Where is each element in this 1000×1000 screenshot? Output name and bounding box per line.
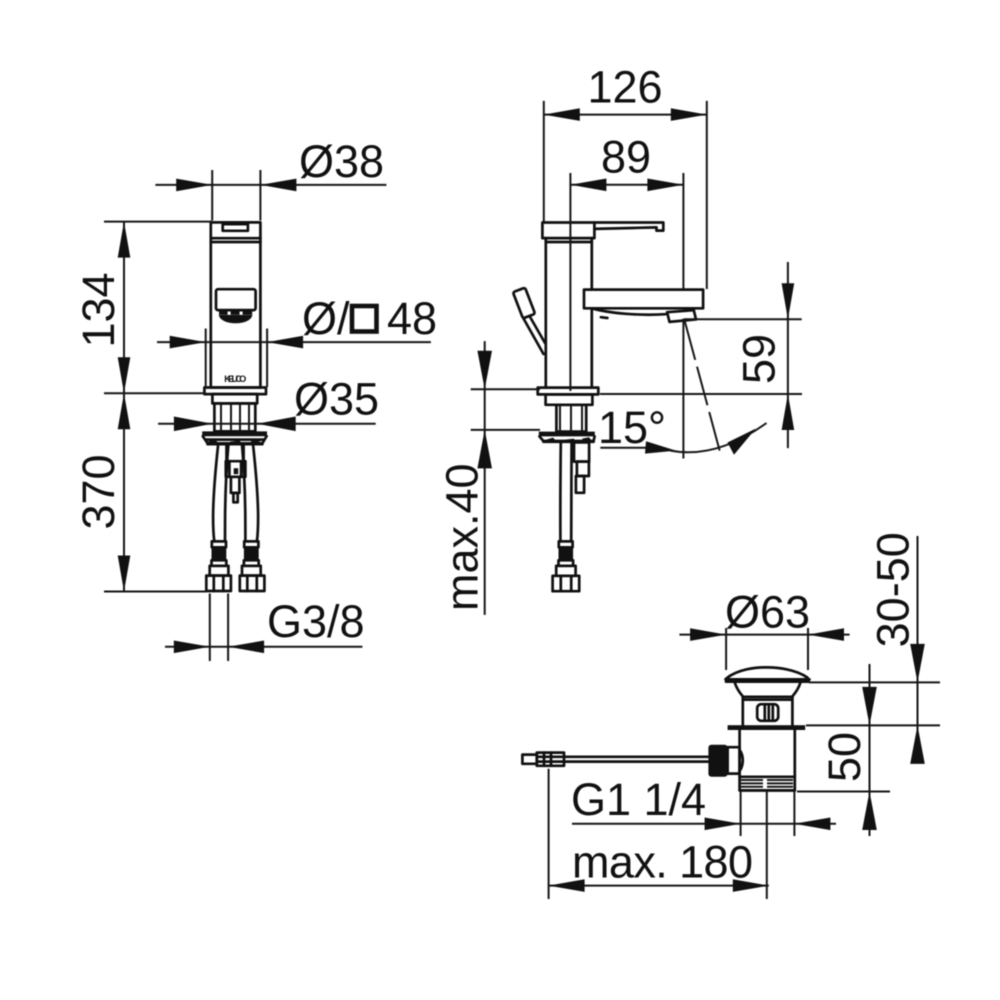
svg-text:30-50: 30-50 <box>868 532 919 647</box>
svg-text:59: 59 <box>734 334 785 384</box>
svg-text:15°: 15° <box>598 402 666 453</box>
svg-text:126: 126 <box>587 62 662 113</box>
svg-text:max.40: max.40 <box>437 463 488 611</box>
svg-text:G3/8: G3/8 <box>267 596 365 647</box>
svg-text:50: 50 <box>819 732 870 782</box>
svg-text:Ø63: Ø63 <box>725 587 810 638</box>
svg-text:max. 180: max. 180 <box>572 837 753 888</box>
svg-text:Ø38: Ø38 <box>299 136 384 187</box>
svg-text:Ø35: Ø35 <box>294 374 379 425</box>
svg-text:89: 89 <box>601 132 651 183</box>
svg-text:48: 48 <box>387 293 437 344</box>
svg-text:Ø/: Ø/ <box>302 293 350 344</box>
svg-text:G1 1/4: G1 1/4 <box>571 774 706 825</box>
svg-text:134: 134 <box>73 272 124 347</box>
svg-text:370: 370 <box>73 454 124 529</box>
svg-text:KEUCO: KEUCO <box>224 374 246 384</box>
